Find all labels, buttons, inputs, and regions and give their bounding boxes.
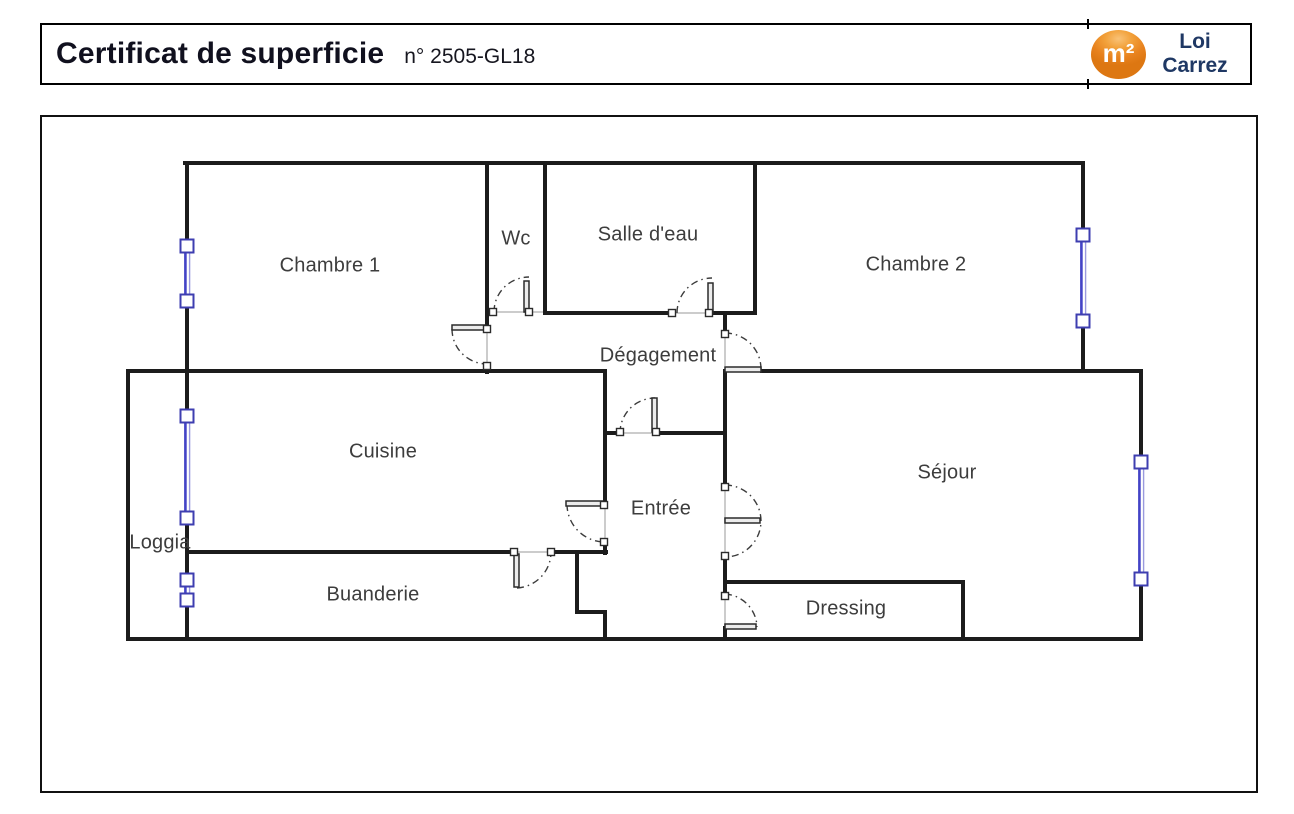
room-label-degagement: Dégagement	[600, 345, 717, 368]
chambre2-door-leaf	[725, 367, 761, 372]
sejour-window	[1135, 456, 1148, 586]
room-label-loggia: Loggia	[129, 532, 190, 555]
room-label-chambre-2: Chambre 2	[866, 254, 967, 277]
room-label-buanderie: Buanderie	[327, 584, 420, 607]
dressing-door-leaf	[725, 624, 756, 629]
degagement-door-leaf	[652, 398, 657, 432]
chambre1-window	[181, 240, 194, 308]
page: Certificat de superficie n° 2505-GL18 m²…	[0, 0, 1294, 814]
chambre2-window	[1077, 229, 1090, 328]
buanderie-window	[181, 574, 194, 607]
floor-plan-svg	[0, 0, 1294, 814]
windows-layer	[181, 229, 1148, 607]
room-label-entree: Entrée	[631, 498, 691, 521]
room-label-salle-deau: Salle d'eau	[598, 224, 699, 247]
room-label-chambre-1: Chambre 1	[280, 255, 381, 278]
salle-deau-door-leaf	[708, 283, 713, 313]
chambre1-door-leaf	[452, 325, 486, 330]
wc-door-leaf	[524, 281, 529, 312]
room-label-sejour: Séjour	[917, 462, 976, 485]
cuisine-door-leaf	[566, 501, 603, 506]
sejour-door-leaf	[725, 518, 760, 523]
room-label-dressing: Dressing	[806, 598, 887, 621]
room-label-wc: Wc	[501, 228, 530, 251]
room-label-cuisine: Cuisine	[349, 441, 417, 464]
cuisine-window	[181, 410, 194, 525]
buanderie-door-leaf	[514, 554, 519, 587]
